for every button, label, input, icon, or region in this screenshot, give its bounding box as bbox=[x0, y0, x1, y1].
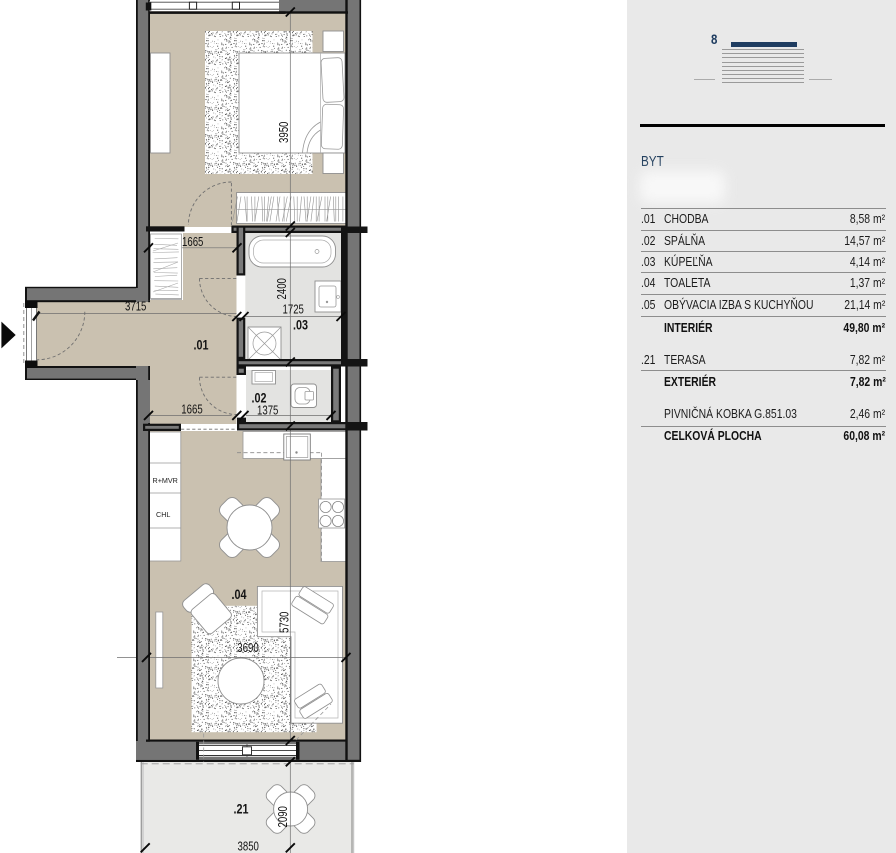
svg-text:5730: 5730 bbox=[278, 612, 292, 633]
svg-text:.04: .04 bbox=[232, 587, 247, 602]
svg-text:.03: .03 bbox=[293, 317, 308, 332]
svg-text:1375: 1375 bbox=[257, 404, 278, 418]
svg-text:3690: 3690 bbox=[237, 642, 258, 656]
svg-text:.21: .21 bbox=[234, 801, 249, 816]
svg-text:1665: 1665 bbox=[181, 403, 202, 417]
svg-text:.01: .01 bbox=[194, 337, 209, 352]
svg-text:2400: 2400 bbox=[276, 278, 290, 299]
svg-text:1725: 1725 bbox=[283, 303, 304, 317]
svg-text:3850: 3850 bbox=[238, 840, 259, 853]
svg-text:R+MVR: R+MVR bbox=[153, 476, 178, 485]
svg-text:CHL: CHL bbox=[156, 510, 170, 519]
svg-text:3715: 3715 bbox=[125, 300, 146, 314]
svg-text:2090: 2090 bbox=[277, 806, 291, 827]
svg-text:3950: 3950 bbox=[278, 122, 292, 143]
svg-text:1665: 1665 bbox=[182, 236, 203, 250]
